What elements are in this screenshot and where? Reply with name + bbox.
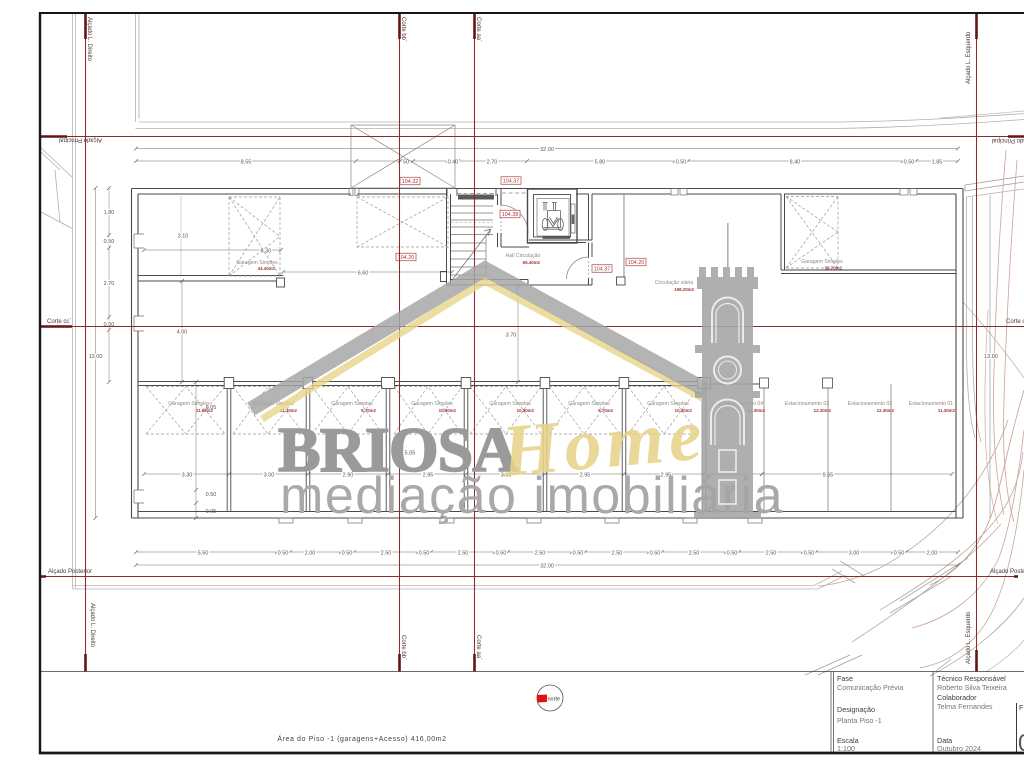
svg-text:Alçado Posterior: Alçado Posterior — [990, 569, 1024, 575]
svg-text:104.37: 104.37 — [503, 179, 520, 185]
svg-text:Corte bb´: Corte bb´ — [400, 635, 406, 660]
svg-text:2.50: 2.50 — [766, 550, 777, 556]
svg-text:Alçado Principal: Alçado Principal — [59, 137, 102, 143]
svg-text:3.00: 3.00 — [849, 550, 860, 556]
svg-text:13.00: 13.00 — [89, 354, 103, 360]
svg-text:norte: norte — [548, 697, 561, 703]
svg-text:Alçado Principal: Alçado Principal — [992, 137, 1024, 143]
svg-text:10.90m2: 10.90m2 — [439, 408, 457, 413]
svg-text:Estacionamento 01: Estacionamento 01 — [909, 401, 954, 407]
svg-text:3.00: 3.00 — [264, 472, 275, 478]
svg-text:Alçado L. Direito: Alçado L. Direito — [89, 603, 95, 648]
svg-text:1.80: 1.80 — [104, 210, 115, 216]
svg-text:2.50: 2.50 — [535, 550, 546, 556]
svg-text:0.50: 0.50 — [727, 550, 738, 556]
svg-text:Garagem Simples: Garagem Simples — [331, 401, 373, 407]
svg-text:198.20m2: 198.20m2 — [674, 287, 694, 292]
svg-text:F: F — [1019, 703, 1024, 712]
svg-text:Designação: Designação — [837, 705, 875, 714]
svg-text:5.30: 5.30 — [261, 248, 272, 254]
svg-text:104.32: 104.32 — [402, 179, 419, 185]
svg-text:Corte aa´: Corte aa´ — [475, 17, 481, 42]
svg-text:Alçado L. Direito: Alçado L. Direito — [86, 17, 92, 62]
svg-text:0.50: 0.50 — [904, 159, 915, 165]
svg-text:0.50: 0.50 — [419, 550, 430, 556]
svg-text:Alçado L. Esquerdo: Alçado L. Esquerdo — [966, 611, 972, 664]
svg-text:65.40m2: 65.40m2 — [523, 260, 541, 265]
svg-text:2.70: 2.70 — [104, 281, 115, 287]
svg-text:8.55: 8.55 — [241, 159, 252, 165]
svg-text:Corte bb´: Corte bb´ — [400, 17, 406, 42]
svg-text:3.70: 3.70 — [506, 332, 517, 338]
svg-text:12.30m2: 12.30m2 — [877, 408, 895, 413]
svg-text:3.10: 3.10 — [178, 233, 189, 239]
svg-text:1.85: 1.85 — [932, 159, 943, 165]
svg-text:0.50: 0.50 — [496, 550, 507, 556]
svg-text:Circulação viária: Circulação viária — [655, 280, 693, 286]
svg-text:Telma Fernandes: Telma Fernandes — [937, 702, 993, 711]
svg-text:Estacionamento 02: Estacionamento 02 — [848, 401, 893, 407]
svg-text:Estacionamento 03: Estacionamento 03 — [785, 401, 830, 407]
svg-text:50: 50 — [403, 159, 409, 165]
svg-text:Fase: Fase — [837, 674, 853, 683]
svg-text:2.00: 2.00 — [305, 550, 316, 556]
svg-text:11.30m2: 11.30m2 — [938, 408, 956, 413]
svg-text:44.40m2: 44.40m2 — [258, 266, 276, 271]
svg-text:0.50: 0.50 — [278, 550, 289, 556]
svg-text:Corte cc´: Corte cc´ — [1006, 319, 1024, 325]
svg-text:0.50: 0.50 — [894, 550, 905, 556]
svg-text:Garagem Simples: Garagem Simples — [489, 401, 531, 407]
svg-text:104.20: 104.20 — [628, 260, 645, 266]
svg-text:2.50: 2.50 — [381, 550, 392, 556]
svg-text:30.70m2: 30.70m2 — [825, 266, 843, 271]
svg-text:0.50: 0.50 — [804, 550, 815, 556]
svg-text:5.80: 5.80 — [595, 159, 606, 165]
svg-text:2.50: 2.50 — [458, 550, 469, 556]
svg-text:0.50: 0.50 — [206, 492, 217, 498]
svg-text:104.38: 104.38 — [502, 212, 519, 218]
svg-text:Hall Circulação: Hall Circulação — [506, 253, 541, 259]
svg-text:6.60: 6.60 — [358, 270, 369, 276]
svg-text:0.50: 0.50 — [573, 550, 584, 556]
svg-text:8.40: 8.40 — [790, 159, 801, 165]
svg-text:11.60m2: 11.60m2 — [196, 408, 214, 413]
svg-text:0.40: 0.40 — [448, 159, 459, 165]
svg-text:104.37: 104.37 — [594, 267, 611, 273]
svg-text:12.30m2: 12.30m2 — [814, 408, 832, 413]
svg-text:2.00: 2.00 — [927, 550, 938, 556]
svg-text:2.70: 2.70 — [487, 159, 498, 165]
svg-text:4.00: 4.00 — [177, 329, 188, 335]
svg-text:Planta Piso -1: Planta Piso -1 — [837, 716, 882, 725]
svg-text:104.20: 104.20 — [398, 255, 415, 261]
svg-text:Comunicação Prévia: Comunicação Prévia — [837, 683, 903, 692]
svg-text:13.00: 13.00 — [984, 354, 998, 360]
svg-text:Área do Piso -1 (garagens+: Área do Piso -1 (garagens+Acesso) 416,00… — [277, 734, 446, 743]
svg-text:0.50: 0.50 — [342, 550, 353, 556]
svg-text:Corte cc´: Corte cc´ — [47, 319, 71, 325]
svg-text:0.05: 0.05 — [206, 509, 217, 515]
svg-text:0.50: 0.50 — [676, 159, 687, 165]
svg-text:Corte aa´: Corte aa´ — [475, 635, 481, 660]
svg-text:5.50: 5.50 — [198, 550, 209, 556]
svg-text:32.00: 32.00 — [540, 563, 554, 569]
svg-text:Garagem Simples: Garagem Simples — [168, 401, 210, 407]
svg-text:0.50: 0.50 — [650, 550, 661, 556]
svg-text:0.50: 0.50 — [104, 239, 115, 245]
svg-text:Alçado L. Esquerdo: Alçado L. Esquerdo — [966, 31, 972, 84]
svg-text:9.70m2: 9.70m2 — [361, 408, 376, 413]
svg-text:Garagem Simples: Garagem Simples — [801, 259, 843, 265]
svg-text:Garagem Simples: Garagem Simples — [411, 401, 453, 407]
svg-text:32.00: 32.00 — [540, 147, 554, 153]
svg-text:Alçado Posterior: Alçado Posterior — [48, 569, 92, 575]
svg-text:2.50: 2.50 — [689, 550, 700, 556]
svg-text:3.30: 3.30 — [182, 472, 193, 478]
svg-text:0.50: 0.50 — [104, 322, 115, 328]
svg-text:Técnico Responsável: Técnico Responsável — [937, 674, 1006, 683]
svg-text:Roberto Silva Teixeira: Roberto Silva Teixeira — [937, 683, 1007, 692]
svg-text:Colaborador: Colaborador — [937, 693, 977, 702]
svg-text:2.50: 2.50 — [612, 550, 623, 556]
